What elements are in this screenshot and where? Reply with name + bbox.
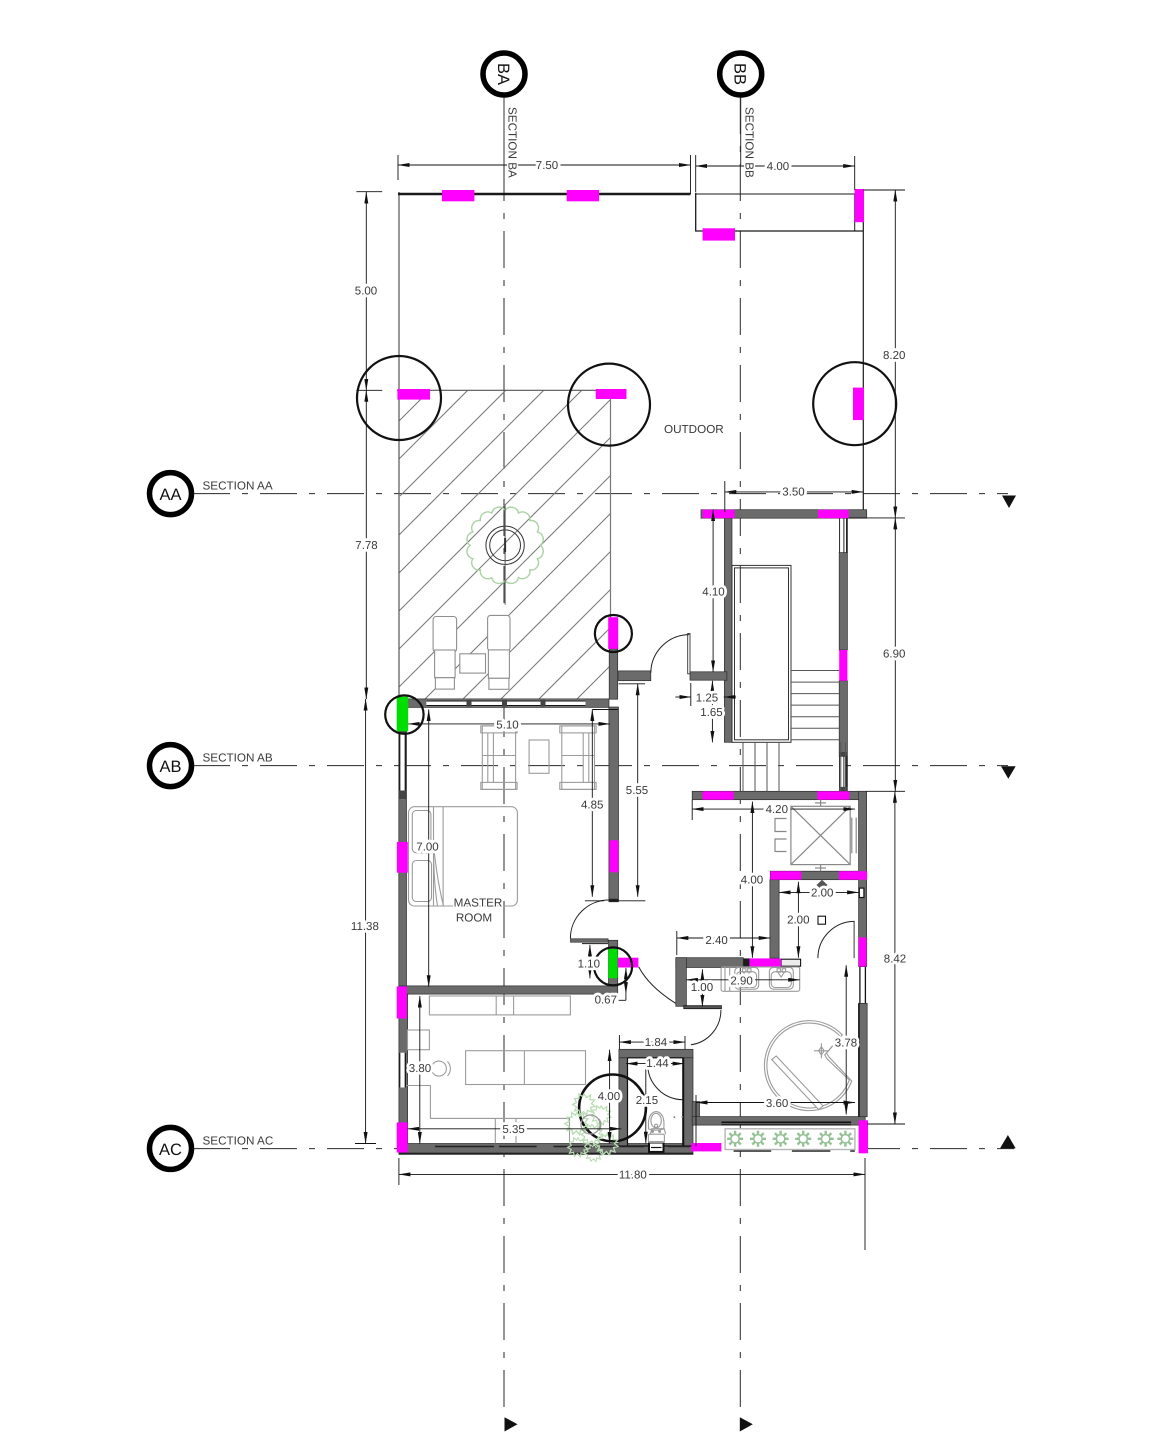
svg-text:4.00: 4.00 xyxy=(741,875,763,887)
svg-text:AC: AC xyxy=(159,1141,182,1159)
svg-text:4.00: 4.00 xyxy=(598,1091,620,1103)
svg-text:6.90: 6.90 xyxy=(883,649,905,661)
svg-text:SECTION AB: SECTION AB xyxy=(203,752,273,765)
svg-text:4.85: 4.85 xyxy=(581,800,603,812)
svg-text:4.00: 4.00 xyxy=(767,161,789,173)
svg-text:7.00: 7.00 xyxy=(416,842,438,854)
svg-text:AB: AB xyxy=(159,758,181,776)
svg-text:1.10: 1.10 xyxy=(578,959,600,971)
svg-text:7.78: 7.78 xyxy=(355,540,377,552)
svg-text:11.38: 11.38 xyxy=(351,921,379,933)
svg-text:3.80: 3.80 xyxy=(409,1063,431,1075)
svg-text:ROOM: ROOM xyxy=(456,912,492,925)
svg-text:8.42: 8.42 xyxy=(884,954,906,966)
svg-text:BB: BB xyxy=(731,63,749,85)
svg-text:1.00: 1.00 xyxy=(691,982,713,994)
svg-text:SECTION AC: SECTION AC xyxy=(203,1135,274,1148)
svg-text:5.00: 5.00 xyxy=(355,286,377,298)
svg-text:3.78: 3.78 xyxy=(835,1038,857,1050)
svg-text:4.20: 4.20 xyxy=(766,804,788,816)
svg-text:8.20: 8.20 xyxy=(883,350,905,362)
svg-text:OUTDOOR: OUTDOOR xyxy=(664,423,724,436)
svg-text:SECTION BA: SECTION BA xyxy=(506,107,519,178)
svg-text:1.65: 1.65 xyxy=(700,707,722,719)
svg-text:0.67: 0.67 xyxy=(595,994,617,1006)
svg-text:7.50: 7.50 xyxy=(536,160,558,172)
svg-text:1.84: 1.84 xyxy=(645,1037,668,1049)
svg-text:2.90: 2.90 xyxy=(730,975,752,987)
svg-text:2.00: 2.00 xyxy=(811,888,833,900)
svg-text:2.15: 2.15 xyxy=(636,1095,658,1107)
svg-text:5.35: 5.35 xyxy=(502,1124,524,1136)
svg-text:2.40: 2.40 xyxy=(705,935,727,947)
svg-text:4.10: 4.10 xyxy=(702,587,724,599)
svg-text:SECTION AA: SECTION AA xyxy=(203,480,273,493)
svg-text:5.55: 5.55 xyxy=(626,785,648,797)
svg-text:1.44: 1.44 xyxy=(646,1058,669,1070)
svg-text:2.00: 2.00 xyxy=(787,915,809,927)
svg-text:MASTER: MASTER xyxy=(454,897,503,910)
svg-text:3.50: 3.50 xyxy=(782,487,804,499)
svg-text:BA: BA xyxy=(494,63,512,85)
svg-text:3.60: 3.60 xyxy=(766,1098,788,1110)
svg-text:SECTION BB: SECTION BB xyxy=(743,107,756,178)
svg-text:5.10: 5.10 xyxy=(496,720,518,732)
svg-text:AA: AA xyxy=(159,486,181,504)
svg-text:1.25: 1.25 xyxy=(696,693,718,705)
svg-text:11.80: 11.80 xyxy=(619,1169,647,1181)
